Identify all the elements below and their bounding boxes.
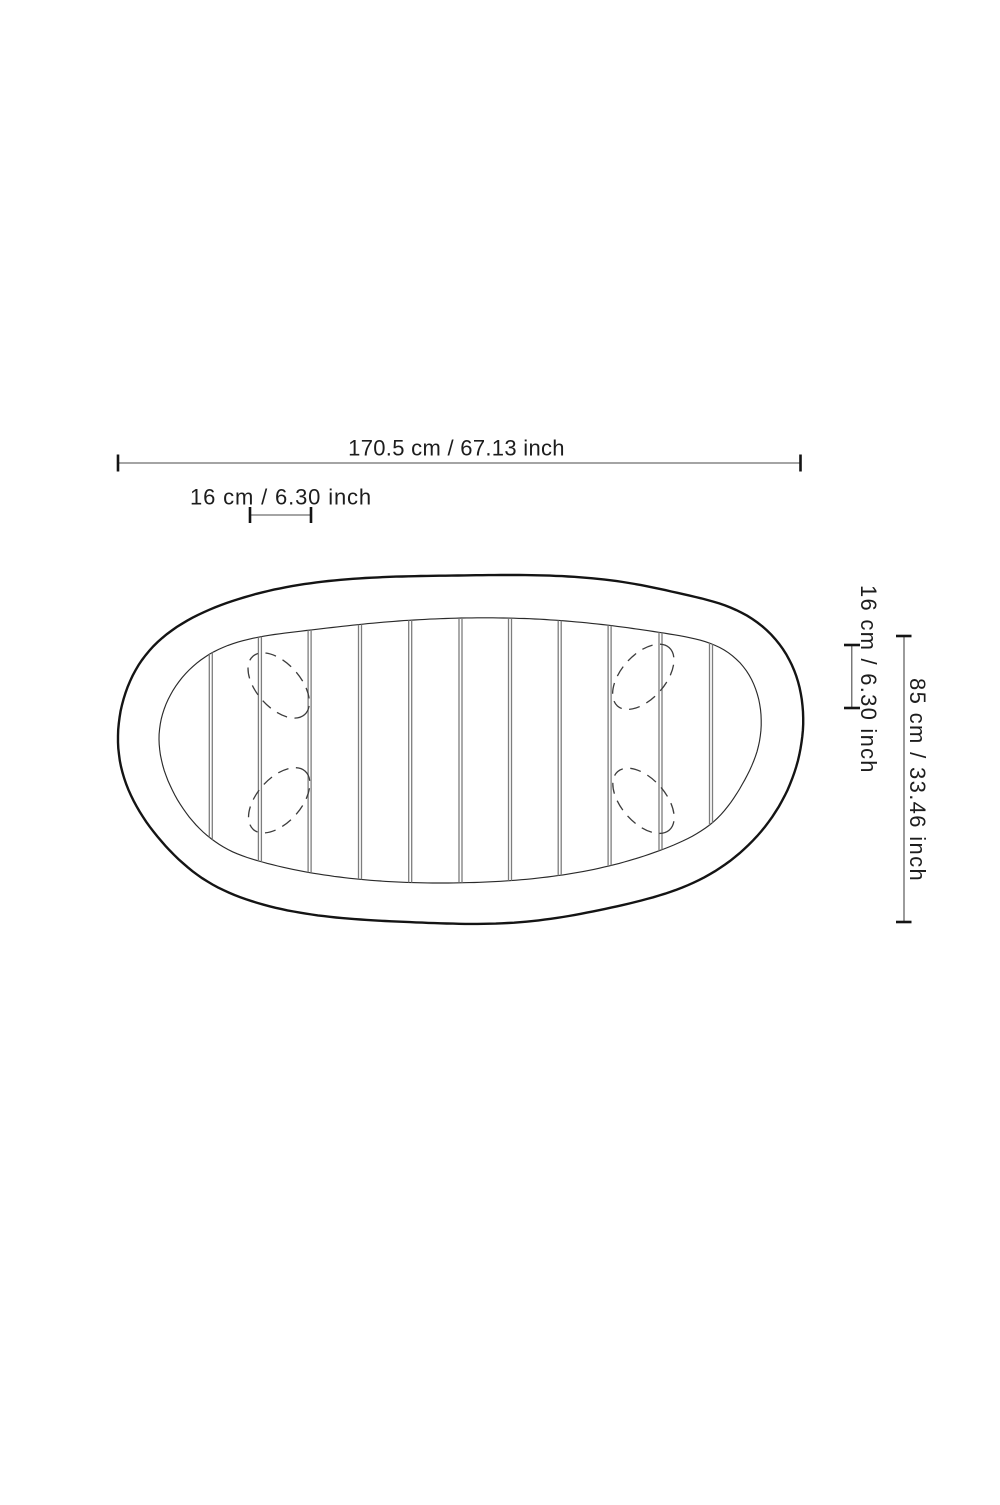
svg-text:16 cm / 6.30 inch: 16 cm / 6.30 inch [856,585,881,774]
svg-text:170.5 cm / 67.13 inch: 170.5 cm / 67.13 inch [348,436,565,461]
svg-text:16 cm / 6.30 inch: 16 cm / 6.30 inch [190,485,372,510]
svg-text:85 cm / 33.46 inch: 85 cm / 33.46 inch [905,678,930,882]
